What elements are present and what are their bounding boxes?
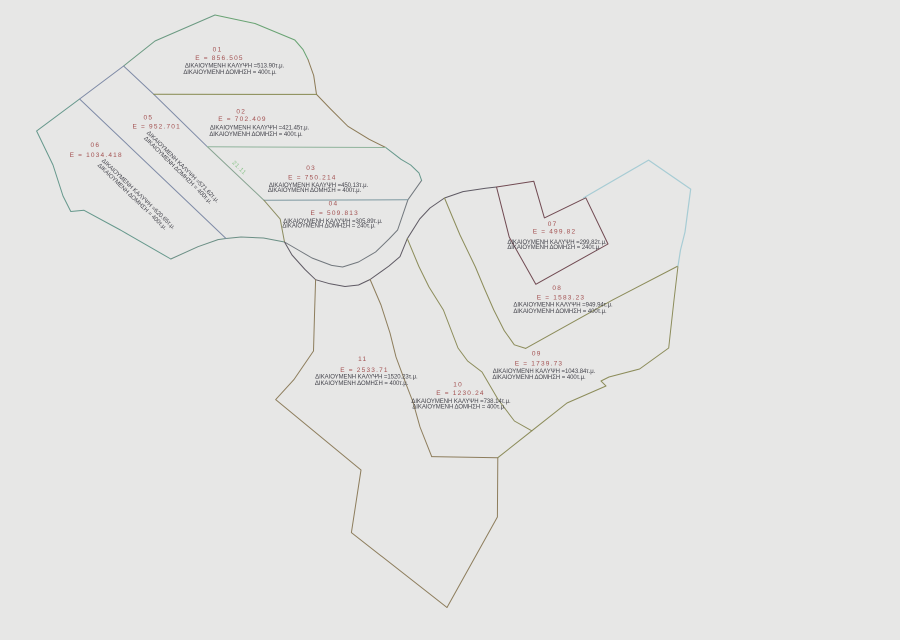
svg-text:21.11: 21.11 bbox=[230, 160, 246, 176]
svg-text:07: 07 bbox=[548, 221, 558, 228]
svg-text:ΔΙΚΑΙΟΥΜΕΝΗ ΔΟΜΗΣΗ = 400τ.μ.: ΔΙΚΑΙΟΥΜΕΝΗ ΔΟΜΗΣΗ = 400τ.μ. bbox=[142, 136, 213, 206]
svg-text:Ε = 2533.71: Ε = 2533.71 bbox=[340, 367, 388, 374]
svg-text:01: 01 bbox=[213, 47, 223, 54]
svg-text:Ε = 750.214: Ε = 750.214 bbox=[288, 174, 336, 181]
svg-text:ΔΙΚΑΙΟΥΜΕΝΗ ΔΟΜΗΣΗ = 400τ.μ.: ΔΙΚΑΙΟΥΜΕΝΗ ΔΟΜΗΣΗ = 400τ.μ. bbox=[492, 375, 586, 381]
svg-text:Ε = 1583.23: Ε = 1583.23 bbox=[537, 295, 585, 302]
svg-text:ΔΙΚΑΙΟΥΜΕΝΗ ΚΑΛΥΨΗ =1520.23τ.μ: ΔΙΚΑΙΟΥΜΕΝΗ ΚΑΛΥΨΗ =1520.23τ.μ. bbox=[315, 374, 418, 380]
svg-text:Ε = 509.813: Ε = 509.813 bbox=[310, 210, 358, 217]
svg-text:ΔΙΚΑΙΟΥΜΕΝΗ ΔΟΜΗΣΗ = 400τ.μ.: ΔΙΚΑΙΟΥΜΕΝΗ ΔΟΜΗΣΗ = 400τ.μ. bbox=[209, 132, 303, 138]
svg-text:11: 11 bbox=[358, 356, 367, 363]
svg-text:Ε = 1739.73: Ε = 1739.73 bbox=[515, 361, 563, 368]
svg-text:Ε = 1034.418: Ε = 1034.418 bbox=[70, 152, 123, 159]
svg-text:ΔΙΚΑΙΟΥΜΕΝΗ ΚΑΛΥΨΗ =421.45τ.μ.: ΔΙΚΑΙΟΥΜΕΝΗ ΚΑΛΥΨΗ =421.45τ.μ. bbox=[210, 126, 310, 132]
svg-text:Ε = 1230.24: Ε = 1230.24 bbox=[436, 390, 484, 397]
svg-text:08: 08 bbox=[552, 285, 562, 292]
svg-text:Ε = 499.82: Ε = 499.82 bbox=[533, 228, 577, 235]
svg-text:10: 10 bbox=[453, 382, 463, 389]
svg-text:ΔΙΚΑΙΟΥΜΕΝΗ ΔΟΜΗΣΗ = 400τ.μ.: ΔΙΚΑΙΟΥΜΕΝΗ ΔΟΜΗΣΗ = 400τ.μ. bbox=[268, 188, 362, 194]
svg-text:03: 03 bbox=[306, 165, 316, 172]
svg-text:06: 06 bbox=[90, 142, 100, 149]
svg-text:Ε = 856.505: Ε = 856.505 bbox=[195, 55, 243, 62]
svg-text:ΔΙΚΑΙΟΥΜΕΝΗ ΔΟΜΗΣΗ = 400τ.μ.: ΔΙΚΑΙΟΥΜΕΝΗ ΔΟΜΗΣΗ = 400τ.μ. bbox=[183, 70, 277, 76]
svg-text:ΔΙΚΑΙΟΥΜΕΝΗ ΔΟΜΗΣΗ = 240τ.μ.: ΔΙΚΑΙΟΥΜΕΝΗ ΔΟΜΗΣΗ = 240τ.μ. bbox=[282, 224, 376, 230]
svg-text:ΔΙΚΑΙΟΥΜΕΝΗ ΚΑΛΥΨΗ =571.62τ.μ.: ΔΙΚΑΙΟΥΜΕΝΗ ΚΑΛΥΨΗ =571.62τ.μ. bbox=[145, 130, 220, 204]
svg-text:02: 02 bbox=[236, 108, 246, 115]
svg-text:ΔΙΚΑΙΟΥΜΕΝΗ ΔΟΜΗΣΗ = 400τ.μ.: ΔΙΚΑΙΟΥΜΕΝΗ ΔΟΜΗΣΗ = 400τ.μ. bbox=[412, 405, 506, 411]
svg-text:09: 09 bbox=[532, 351, 542, 358]
svg-text:ΔΙΚΑΙΟΥΜΕΝΗ ΚΑΛΥΨΗ =949.94τ.μ.: ΔΙΚΑΙΟΥΜΕΝΗ ΚΑΛΥΨΗ =949.94τ.μ. bbox=[513, 303, 613, 309]
svg-text:ΔΙΚΑΙΟΥΜΕΝΗ ΚΑΛΥΨΗ =513.90τ.μ.: ΔΙΚΑΙΟΥΜΕΝΗ ΚΑΛΥΨΗ =513.90τ.μ. bbox=[185, 64, 285, 70]
svg-text:ΔΙΚΑΙΟΥΜΕΝΗ ΔΟΜΗΣΗ = 400τ.μ.: ΔΙΚΑΙΟΥΜΕΝΗ ΔΟΜΗΣΗ = 400τ.μ. bbox=[315, 381, 409, 387]
svg-text:ΔΙΚΑΙΟΥΜΕΝΗ ΚΑΛΥΨΗ =620.65τ.μ.: ΔΙΚΑΙΟΥΜΕΝΗ ΚΑΛΥΨΗ =620.65τ.μ. bbox=[100, 158, 176, 231]
svg-text:04: 04 bbox=[329, 201, 339, 208]
svg-text:ΔΙΚΑΙΟΥΜΕΝΗ ΔΟΜΗΣΗ = 400τ.μ.: ΔΙΚΑΙΟΥΜΕΝΗ ΔΟΜΗΣΗ = 400τ.μ. bbox=[513, 309, 607, 315]
svg-text:ΔΙΚΑΙΟΥΜΕΝΗ ΔΟΜΗΣΗ = 240τ.μ.: ΔΙΚΑΙΟΥΜΕΝΗ ΔΟΜΗΣΗ = 240τ.μ. bbox=[507, 245, 601, 251]
svg-text:Ε = 702.409: Ε = 702.409 bbox=[218, 116, 266, 123]
svg-text:Ε = 952.701: Ε = 952.701 bbox=[132, 124, 180, 131]
svg-text:05: 05 bbox=[143, 114, 153, 121]
